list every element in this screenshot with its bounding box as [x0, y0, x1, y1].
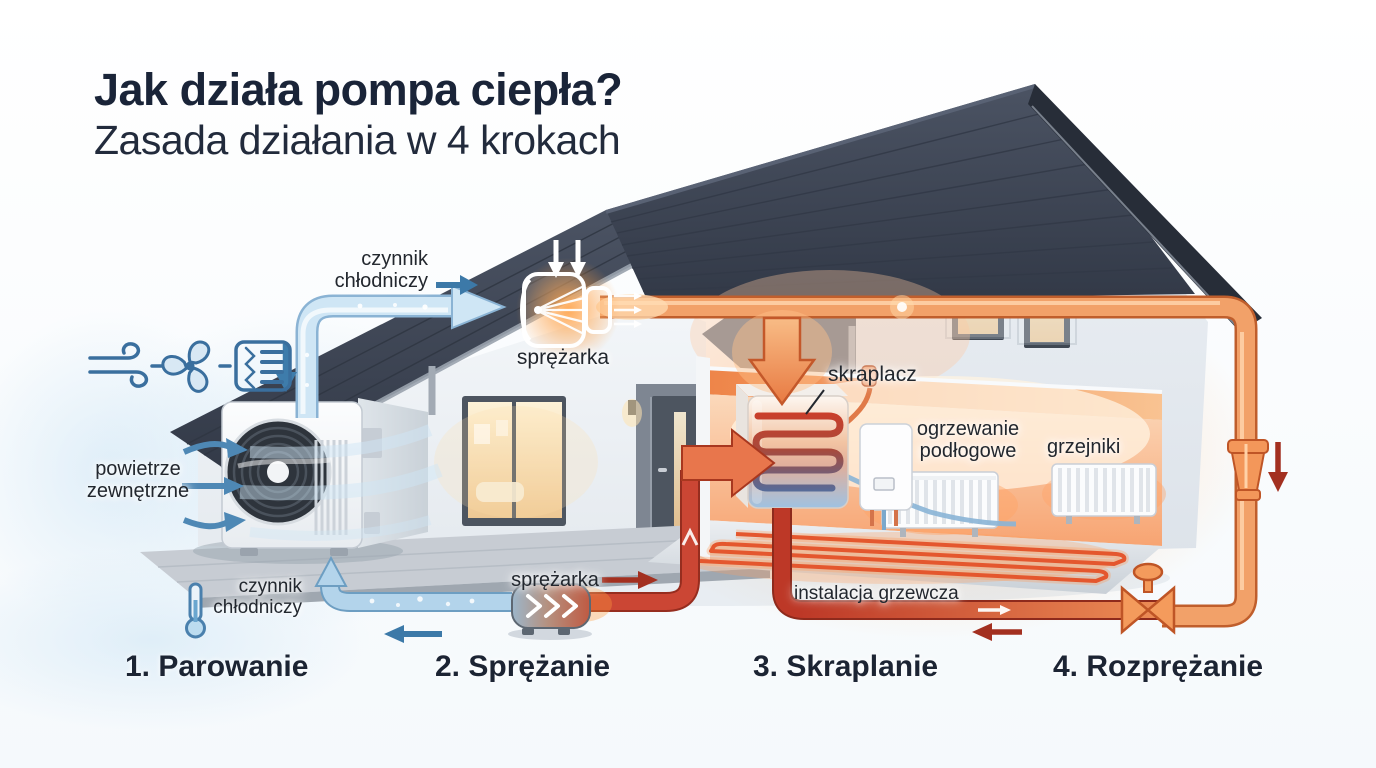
step-4-expansion: 4. Rozprężanie — [1053, 650, 1263, 684]
step-2-compression: 2. Sprężanie — [435, 650, 610, 684]
label-radiators: grzejniki — [1047, 437, 1120, 459]
label-condenser: skraplacz — [828, 364, 917, 387]
heat-pump-infographic: Jak działa pompa ciepła? Zasada działani… — [0, 0, 1376, 768]
label-outside-air: powietrze zewnętrzne — [82, 459, 194, 502]
label-heating-installation: instalacja grzewcza — [794, 584, 959, 605]
label-compressor-top: sprężarka — [498, 347, 628, 370]
step-1-evaporation: 1. Parowanie — [125, 650, 308, 684]
label-compressor-bottom: sprężarka — [500, 570, 610, 592]
page-title: Jak działa pompa ciepła? — [94, 66, 622, 115]
compressor-tank-icon — [508, 584, 612, 640]
step-3-condensation: 3. Skraplanie — [753, 650, 938, 684]
thermometer-icon — [187, 584, 205, 637]
label-refrigerant-bottom: czynnik chłodniczy — [212, 577, 302, 618]
label-floor-heating: ogrzewanie podłogowe — [912, 419, 1024, 462]
label-refrigerant-top: czynnik chłodniczy — [296, 249, 428, 292]
radiator-icon-2 — [1052, 464, 1156, 524]
arrow-left-blue-bottom — [384, 625, 442, 643]
arrow-down-red — [1268, 442, 1288, 492]
page-subtitle: Zasada działania w 4 krokach — [94, 118, 620, 162]
outdoor-unit-fan-icon — [226, 420, 330, 524]
main-roof — [606, 84, 1195, 302]
